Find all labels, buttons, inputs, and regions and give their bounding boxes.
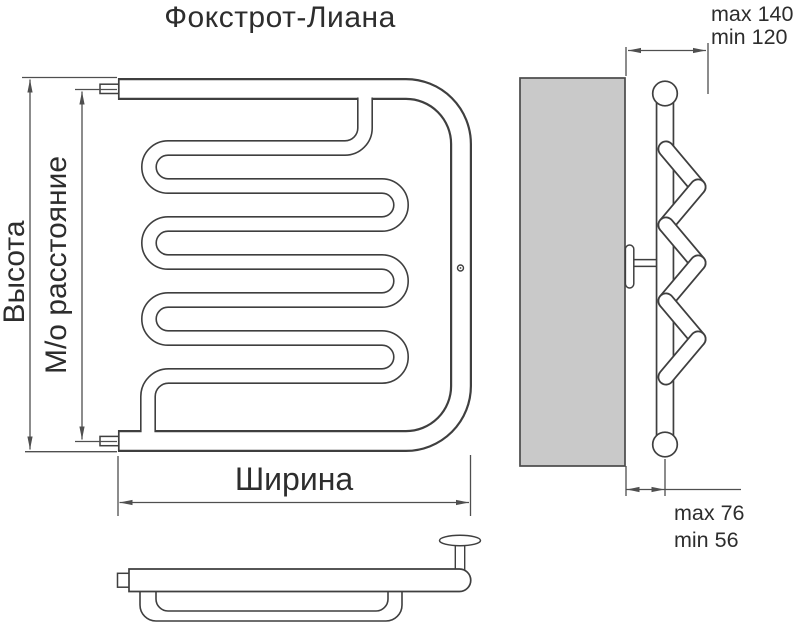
side-view <box>520 78 698 466</box>
bracket-flange <box>625 245 633 288</box>
wall <box>520 78 625 466</box>
vent-hole-dot <box>460 267 462 269</box>
bottom-view-pipe <box>129 569 471 592</box>
side-pipe-bottom-cap <box>653 432 678 457</box>
bottom-view-stub <box>118 573 130 587</box>
center-distance-label: М/о расстояние <box>40 156 73 374</box>
side-pipe-top-cap <box>653 81 678 106</box>
bottom-clearance-min-label: min 56 <box>674 528 739 552</box>
vent-valve-stem <box>455 545 464 571</box>
bottom-clearance-max-label: max 76 <box>674 501 745 525</box>
top-clearance-max-label: max 140 <box>711 2 794 26</box>
bracket-arm <box>632 260 658 267</box>
top-clearance-min-label: min 120 <box>711 25 788 49</box>
bottom-view <box>118 535 481 621</box>
height-label: Высота <box>0 220 31 323</box>
width-label: Ширина <box>235 461 354 497</box>
technical-drawing: Высота М/о расстояние Ширина <box>0 0 800 623</box>
vent-valve-disc <box>440 535 481 545</box>
drawing-page: Высота М/о расстояние Ширина <box>0 0 800 623</box>
front-view <box>100 78 464 452</box>
drawing-title: Фокстрот-Лиана <box>164 1 396 34</box>
serpentine-fill <box>148 94 401 436</box>
